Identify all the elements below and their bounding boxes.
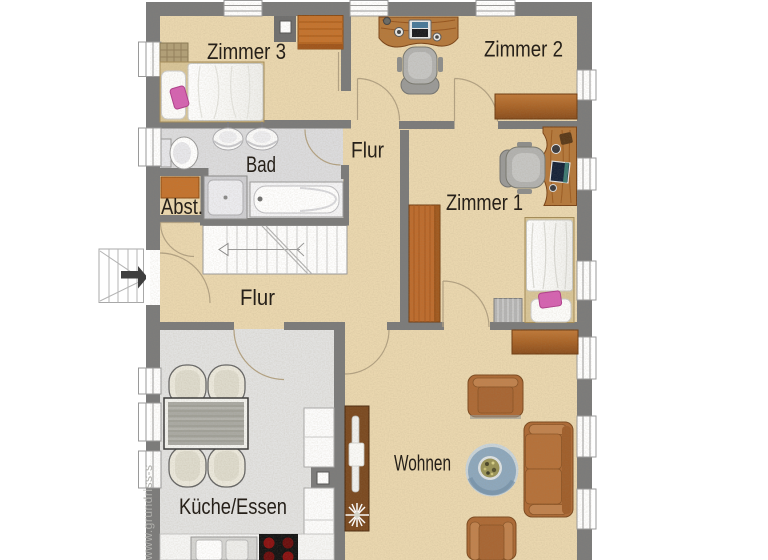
svg-text:Abst.: Abst.: [161, 194, 203, 219]
svg-text:Zimmer 3: Zimmer 3: [207, 39, 286, 64]
svg-text:Küche/Essen: Küche/Essen: [179, 494, 287, 519]
svg-text:Flur: Flur: [351, 138, 384, 163]
svg-text:www.grundriss-s: www.grundriss-s: [141, 464, 155, 560]
svg-text:Zimmer 1: Zimmer 1: [446, 190, 523, 215]
svg-text:Bad: Bad: [246, 152, 276, 177]
svg-text:Flur: Flur: [240, 285, 275, 310]
svg-text:Zimmer 2: Zimmer 2: [484, 37, 563, 62]
svg-text:Wohnen: Wohnen: [394, 451, 451, 476]
